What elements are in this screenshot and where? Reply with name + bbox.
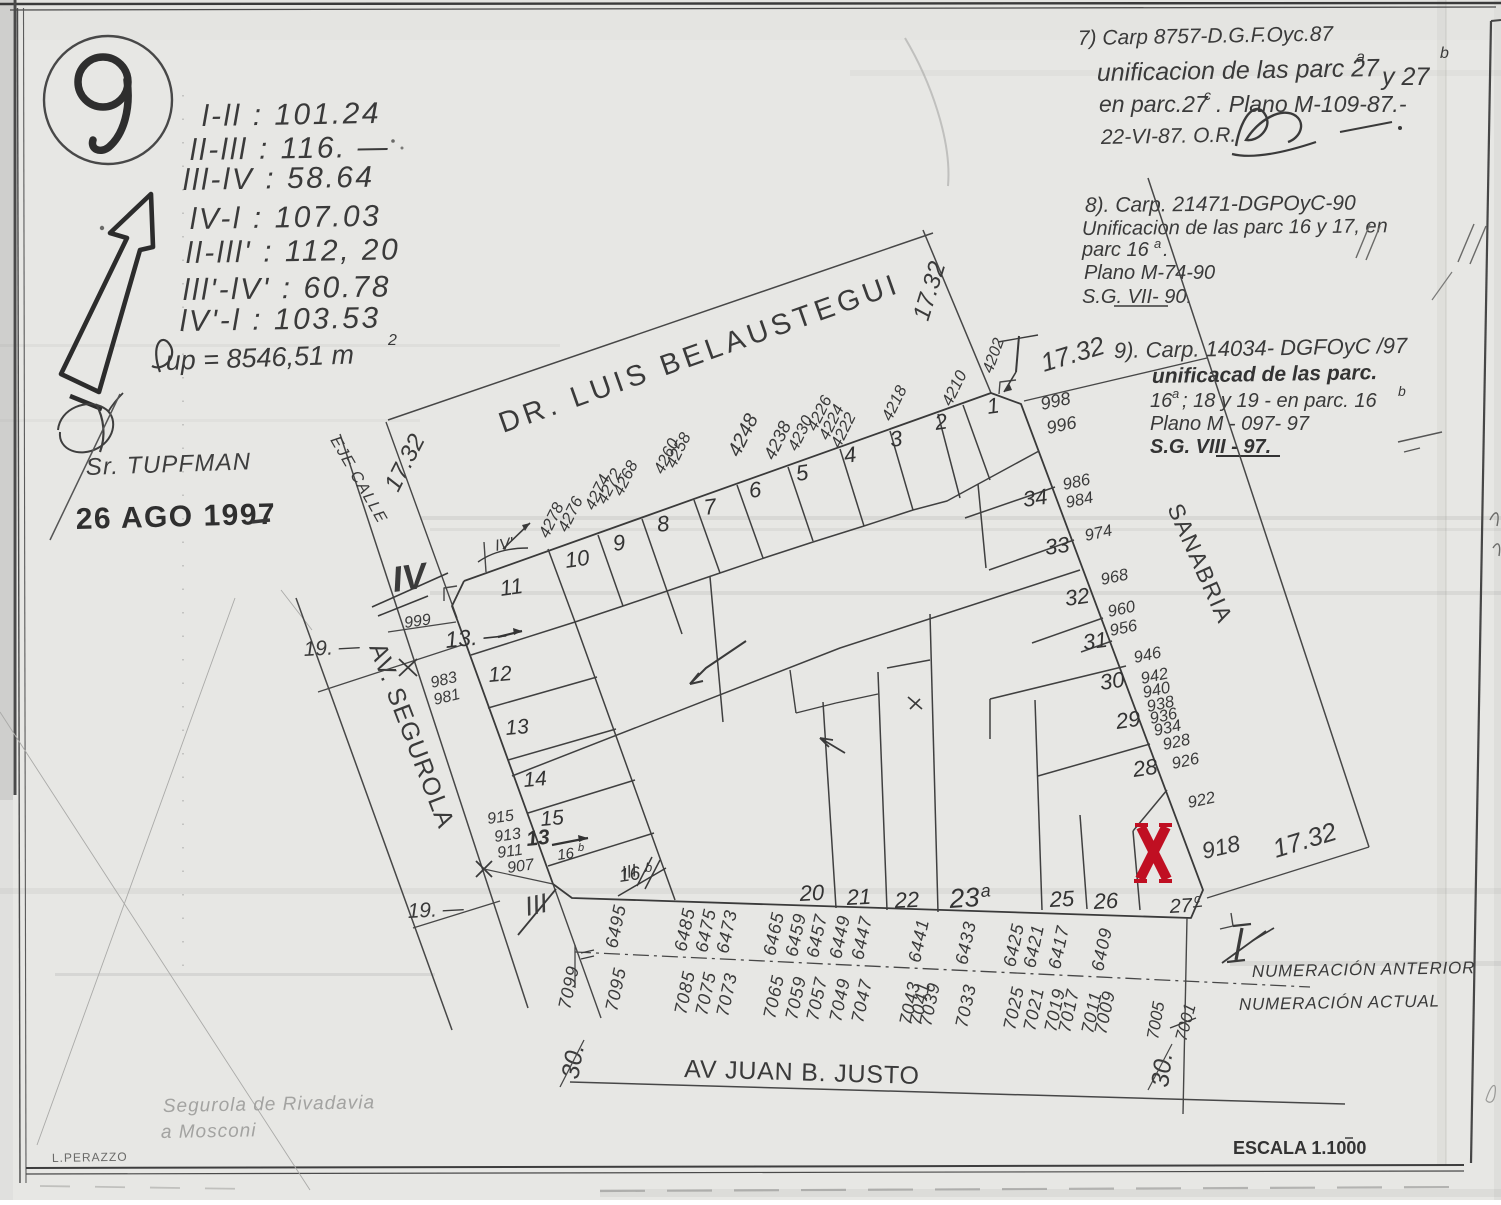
svg-text:l-ll : 101.24: l-ll : 101.24 bbox=[202, 97, 382, 133]
svg-text:b: b bbox=[578, 842, 584, 854]
svg-text:8). Carp. 21471-DGPOyC-90: 8). Carp. 21471-DGPOyC-90 bbox=[1085, 192, 1356, 217]
svg-text:28: 28 bbox=[1130, 754, 1159, 782]
svg-text:b: b bbox=[1440, 45, 1449, 62]
svg-text:26 AGO 1997: 26 AGO 1997 bbox=[75, 498, 276, 536]
svg-text:S.G. VIII - 97.: S.G. VIII - 97. bbox=[1150, 436, 1271, 458]
svg-text:26: 26 bbox=[1092, 888, 1120, 914]
svg-text:32: 32 bbox=[1063, 583, 1091, 611]
svg-text:9). Carp. 14034- DGFOyC /97: 9). Carp. 14034- DGFOyC /97 bbox=[1114, 333, 1409, 363]
svg-text:parc 16: parc 16 bbox=[1081, 239, 1150, 261]
svg-text:27: 27 bbox=[1168, 895, 1193, 918]
svg-text:20: 20 bbox=[798, 880, 826, 906]
svg-text:12: 12 bbox=[487, 662, 513, 687]
svg-text:16: 16 bbox=[556, 845, 576, 864]
svg-text:19. —: 19. — bbox=[407, 897, 465, 923]
svg-text:23: 23 bbox=[947, 882, 980, 914]
svg-text:14: 14 bbox=[522, 767, 547, 792]
svg-text:; 18 y 19 - en parc. 16: ; 18 y 19 - en parc. 16 bbox=[1182, 390, 1377, 412]
svg-text:y 27: y 27 bbox=[1380, 63, 1430, 91]
svg-text:unificacion de las parc 27: unificacion de las parc 27 bbox=[1097, 54, 1381, 87]
svg-text:13: 13 bbox=[504, 715, 530, 740]
svg-text:Unificacion de las parc 16 y 1: Unificacion de las parc 16 y 17, en bbox=[1082, 215, 1388, 240]
svg-text:ESCALA 1.1000: ESCALA 1.1000 bbox=[1233, 1138, 1366, 1158]
svg-text:Segurola de Rivadavia: Segurola de Rivadavia bbox=[163, 1092, 376, 1117]
svg-text:33: 33 bbox=[1043, 532, 1071, 560]
svg-text:15: 15 bbox=[539, 806, 565, 831]
svg-text:b: b bbox=[1398, 383, 1406, 399]
svg-text:7) Carp 8757-D.G.F.Oyc.87: 7) Carp 8757-D.G.F.Oyc.87 bbox=[1078, 23, 1335, 50]
svg-text:25: 25 bbox=[1048, 886, 1076, 912]
svg-text:11: 11 bbox=[498, 573, 524, 601]
svg-text:NUMERACIÓN ACTUAL: NUMERACIÓN ACTUAL bbox=[1239, 991, 1440, 1014]
svg-text:L.PERAZZO: L.PERAZZO bbox=[52, 1150, 128, 1165]
svg-text:29: 29 bbox=[1113, 706, 1142, 734]
svg-text:c: c bbox=[1204, 87, 1211, 103]
svg-text:a: a bbox=[1154, 236, 1161, 251]
svg-text:a Mosconi: a Mosconi bbox=[161, 1120, 257, 1143]
svg-text:.: . bbox=[1163, 239, 1169, 261]
svg-text:34: 34 bbox=[1021, 484, 1049, 512]
svg-text:en parc.27: en parc.27 bbox=[1099, 91, 1209, 117]
svg-text:16: 16 bbox=[1150, 390, 1173, 412]
svg-text:a: a bbox=[1356, 49, 1365, 66]
svg-text:unificacad de las parc.: unificacad de las parc. bbox=[1152, 361, 1378, 388]
svg-text:S.G. VII- 90.: S.G. VII- 90. bbox=[1082, 286, 1192, 308]
svg-text:. Plano M-109-87.-: . Plano M-109-87.- bbox=[1216, 91, 1407, 117]
svg-text:16: 16 bbox=[618, 863, 642, 887]
svg-text:a: a bbox=[980, 880, 991, 901]
svg-text:a: a bbox=[1172, 386, 1179, 401]
svg-text:ll-lll' : 112, 20: ll-lll' : 112, 20 bbox=[186, 233, 401, 270]
svg-text:30: 30 bbox=[1098, 667, 1126, 695]
svg-text:lV'-l : 103.53: lV'-l : 103.53 bbox=[180, 301, 381, 337]
svg-text:22-VI-87. O.R.: 22-VI-87. O.R. bbox=[1100, 124, 1237, 149]
svg-text:22: 22 bbox=[893, 887, 920, 913]
svg-text:31: 31 bbox=[1081, 627, 1109, 655]
svg-text:2: 2 bbox=[387, 332, 397, 349]
svg-text:b: b bbox=[645, 860, 652, 875]
svg-text:10: 10 bbox=[563, 545, 591, 573]
svg-text:21: 21 bbox=[845, 884, 872, 910]
svg-text:lll-lV : 58.64: lll-lV : 58.64 bbox=[183, 161, 375, 197]
svg-text:NUMERACIÓN ANTERIOR: NUMERACIÓN ANTERIOR bbox=[1252, 958, 1476, 981]
svg-text:c: c bbox=[1194, 891, 1201, 906]
svg-text:19. —: 19. — bbox=[303, 635, 361, 661]
svg-text:Plano M-74-90: Plano M-74-90 bbox=[1084, 262, 1215, 284]
svg-text:Sr. TUPFMAN: Sr. TUPFMAN bbox=[85, 448, 251, 481]
svg-text:lV-l : 107.03: lV-l : 107.03 bbox=[190, 200, 382, 236]
